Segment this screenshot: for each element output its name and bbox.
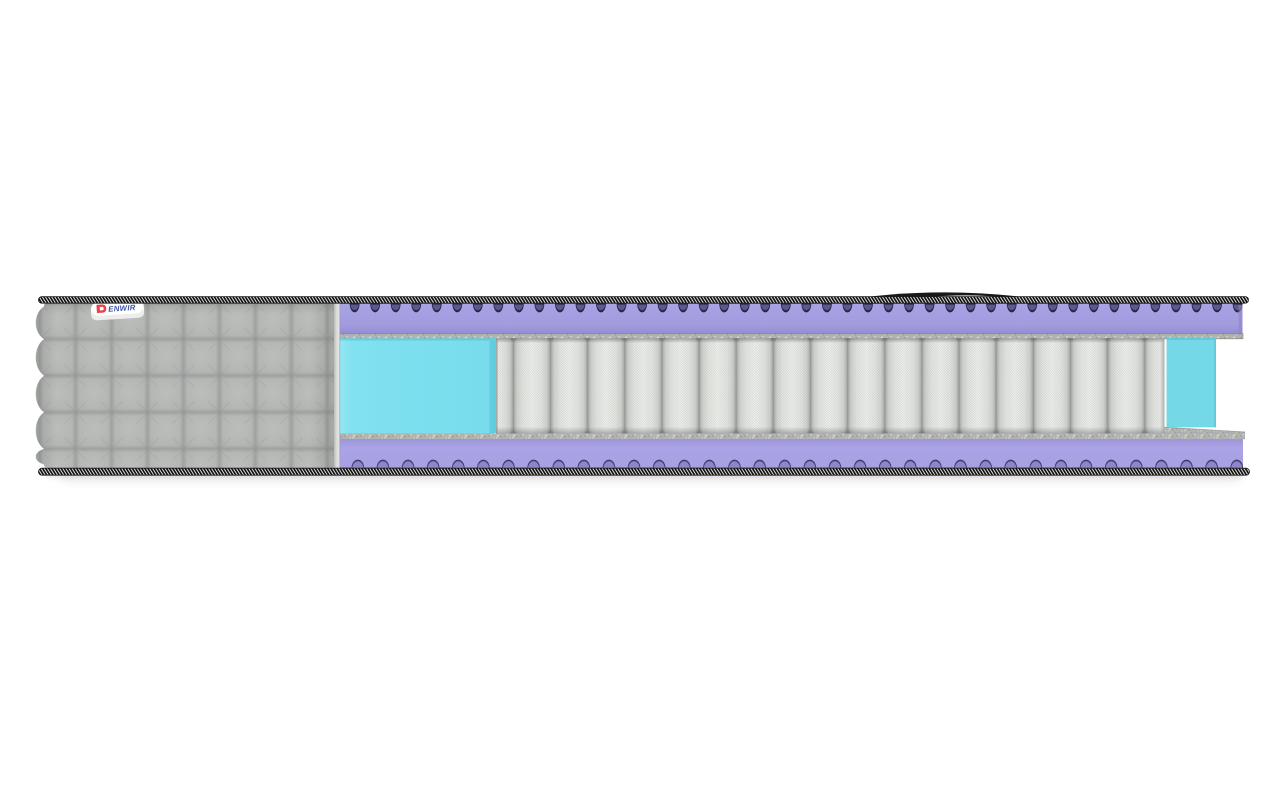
svg-text:ENWIR: ENWIR <box>108 303 136 314</box>
